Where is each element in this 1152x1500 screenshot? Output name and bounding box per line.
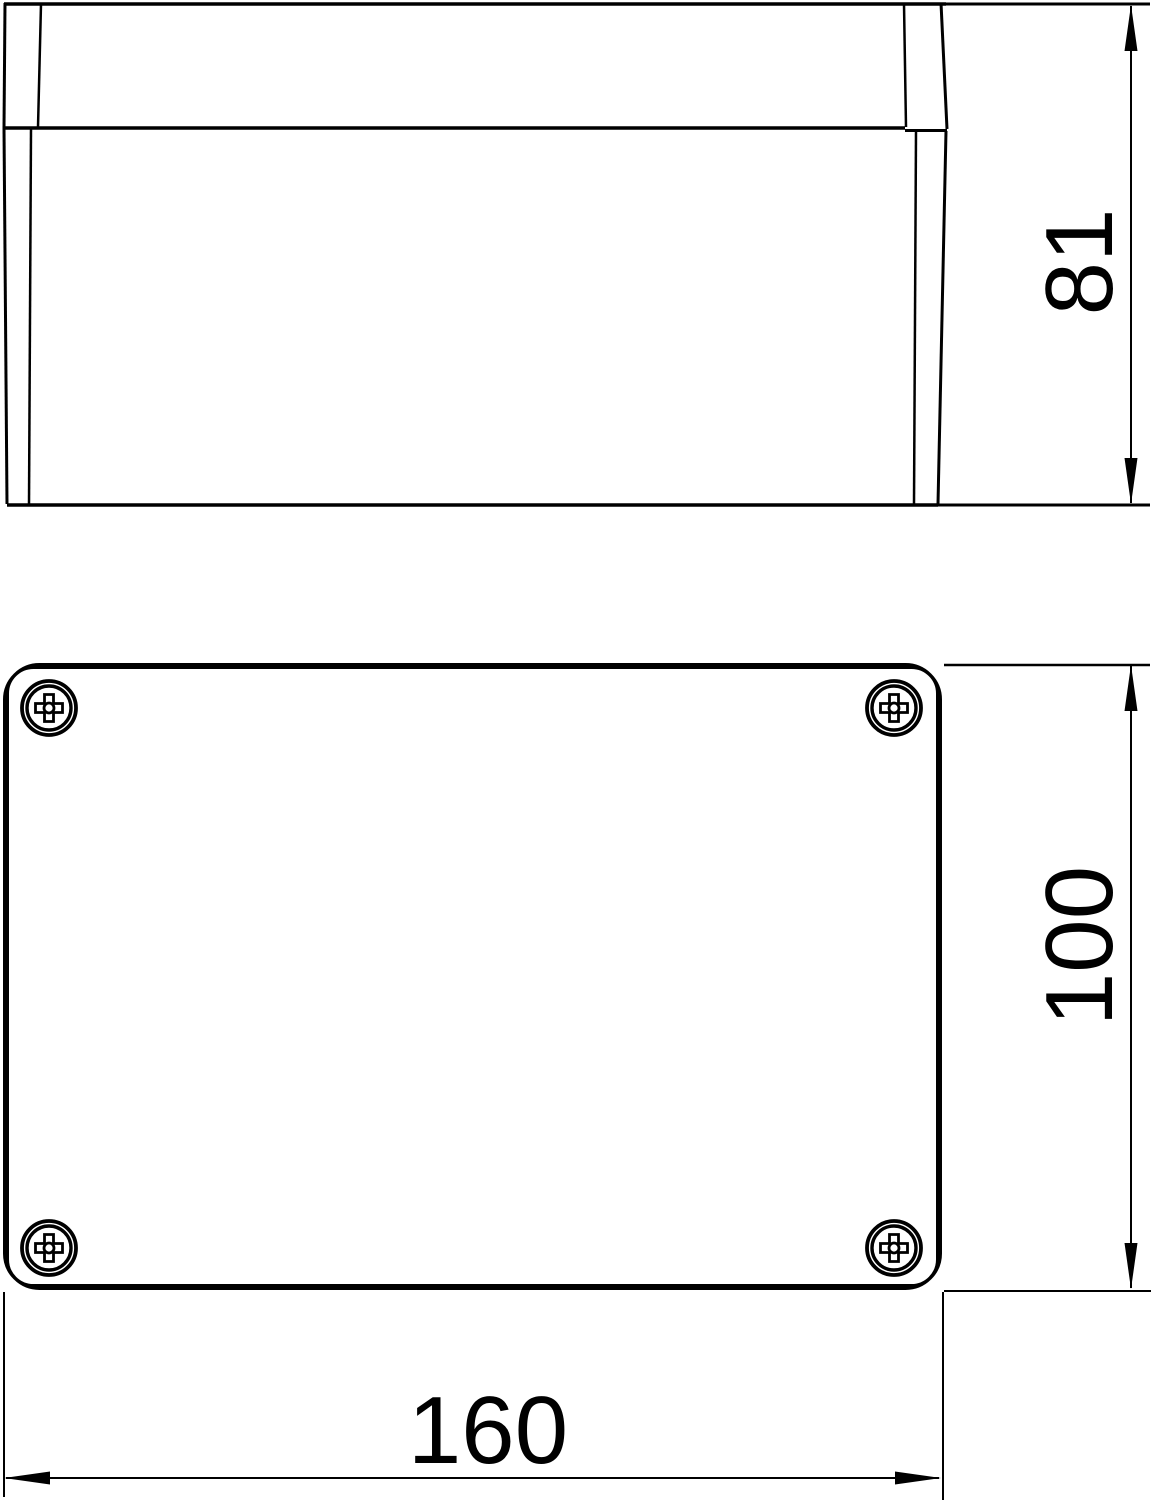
dimension-depth: 100 — [944, 665, 1151, 1291]
body-corner-line-right — [914, 131, 916, 504]
dimension-height-label: 81 — [1026, 209, 1133, 316]
dimension-height: 81 — [938, 4, 1150, 505]
arrowhead-down-icon — [1125, 1243, 1138, 1289]
technical-drawing-page: 81 100 160 — [0, 0, 1152, 1500]
lid-outline-inner — [8, 668, 938, 1286]
dimension-width: 160 — [4, 1292, 943, 1500]
body-corner-line-left — [29, 129, 31, 504]
body-right-edge — [938, 131, 946, 504]
dimension-width-label: 160 — [408, 1377, 568, 1484]
lid-corner-line-right — [904, 4, 906, 127]
arrowhead-right-icon — [895, 1472, 941, 1485]
phillips-screw-bottom-left — [22, 1221, 76, 1275]
arrowhead-up-icon — [1125, 5, 1138, 51]
phillips-screw-top-left — [22, 681, 76, 735]
side-view — [4, 3, 947, 505]
phillips-screw-bottom-right — [867, 1221, 921, 1275]
arrowhead-up-icon — [1125, 665, 1138, 711]
arrowhead-left-icon — [4, 1472, 50, 1485]
lid-corner-line-left — [38, 4, 41, 127]
top-view — [5, 665, 941, 1289]
lid-right-edge — [941, 3, 947, 129]
phillips-screw-top-right — [867, 681, 921, 735]
enclosure-dimension-drawing: 81 100 160 — [0, 0, 1152, 1500]
lid-outline-outer — [5, 665, 941, 1289]
body-left-edge — [4, 128, 7, 504]
dimension-depth-label: 100 — [1026, 866, 1133, 1026]
lid-left-edge — [4, 3, 5, 128]
arrowhead-down-icon — [1125, 458, 1138, 504]
